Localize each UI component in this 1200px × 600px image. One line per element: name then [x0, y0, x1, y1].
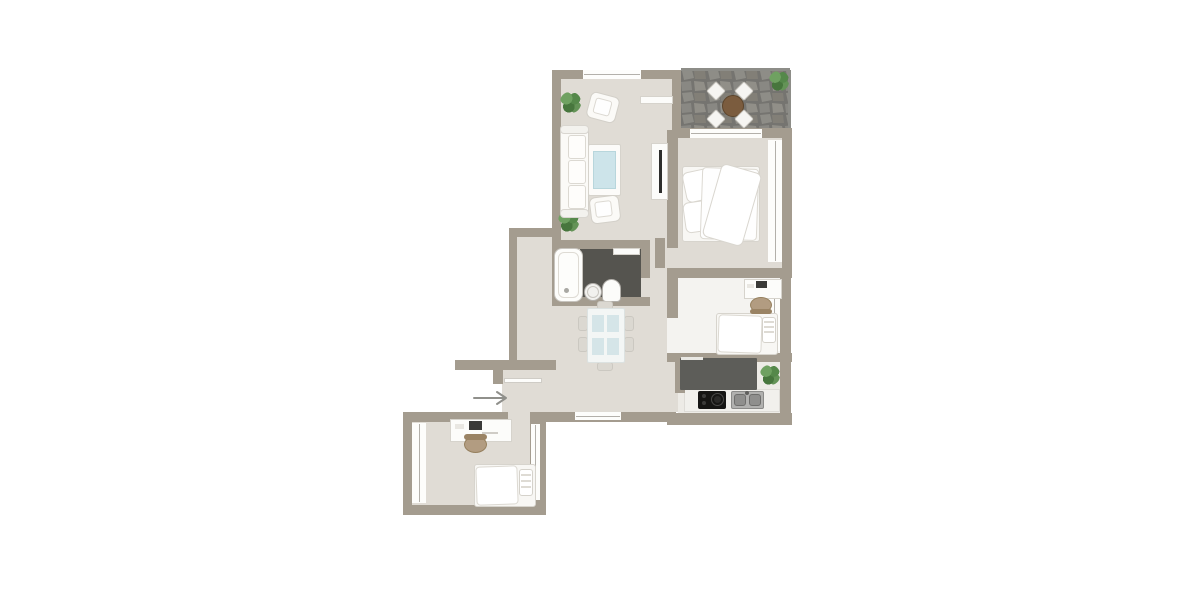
kitchen-dark-table [680, 358, 757, 390]
armchair-bottom-cushion [594, 200, 613, 218]
kitchen-table-highlight [681, 357, 703, 360]
plant-kitchen [760, 365, 780, 385]
sideboard-living [640, 96, 673, 104]
sink-basin-left [734, 394, 746, 406]
desk-paper-bottom-room [455, 424, 464, 429]
chair-small-room-back [750, 309, 772, 314]
dining-placemat-3 [592, 338, 604, 355]
balcony-edge-top [681, 68, 790, 71]
coffee-table-glass [593, 151, 616, 189]
apartment-floor-plan [0, 0, 1200, 600]
bathroom-shelf [613, 248, 640, 255]
dining-chair-bottom [597, 362, 613, 371]
dining-placemat-2 [607, 315, 619, 332]
dining-placemat-1 [592, 315, 604, 332]
stove-knob-2 [702, 401, 706, 405]
bathtub-drain [564, 288, 569, 293]
stove-knob-1 [702, 394, 706, 398]
floor-doorway-bedroom-small [667, 318, 678, 353]
plant-balcony [769, 71, 789, 91]
wall-right-upper [782, 128, 792, 278]
desk-paper-small-room [747, 284, 754, 288]
sofa-cushion-3 [568, 185, 586, 209]
sofa-cushion-2 [568, 160, 586, 184]
dining-placemat-4 [607, 338, 619, 355]
entry-door-threshold [504, 378, 542, 383]
sink-faucet [745, 391, 749, 395]
bed-single-right-duvet [717, 314, 762, 354]
wall-entry-stub [493, 360, 503, 384]
sofa-cushion-1 [568, 135, 586, 159]
wall-balcony-left [672, 70, 681, 130]
dining-chair-right-2 [624, 337, 634, 352]
wall-hall-stub [655, 238, 665, 268]
wall-entry-spur [455, 360, 556, 370]
pillow-line-right-1 [764, 321, 774, 323]
wall-bottom-room-left [403, 412, 412, 515]
bathroom-sink-inner [587, 286, 599, 298]
window-balcony-bedroom [690, 129, 762, 138]
pillow-line-left-1 [521, 474, 531, 476]
dining-chair-right-1 [624, 316, 634, 331]
tv-screen [659, 150, 662, 193]
sink-basin-right [749, 394, 761, 406]
laptop-bottom-room [469, 421, 482, 430]
wall-bedroom-bottom [667, 268, 792, 278]
pillow-line-left-3 [521, 486, 531, 488]
wall-small-room-left [667, 278, 678, 318]
wall-kitchen-bottom [667, 413, 792, 425]
window-bedroom-right [768, 140, 782, 262]
window-living-top [583, 70, 641, 79]
pillow-line-right-3 [764, 331, 774, 333]
floor-doorway-bedroom [667, 248, 678, 268]
bed-single-left-duvet [475, 465, 518, 505]
entrance-arrow [472, 389, 510, 407]
sofa-arm-bottom [560, 209, 589, 218]
wall-living-bedroom [667, 130, 678, 248]
plant-living-top [560, 92, 581, 113]
chair-bottom-room-back [464, 434, 487, 440]
toilet [602, 279, 621, 302]
sofa-arm-top [560, 125, 589, 134]
pillow-line-left-2 [521, 480, 531, 482]
window-hall-bottom [575, 412, 621, 420]
stove-burner-inner [714, 396, 721, 403]
pillow-line-right-2 [764, 326, 774, 328]
laptop-small-room [756, 281, 767, 288]
window-bottom-room-left [412, 423, 426, 503]
wall-bath-right [641, 240, 650, 278]
wall-nook-left [509, 228, 517, 368]
